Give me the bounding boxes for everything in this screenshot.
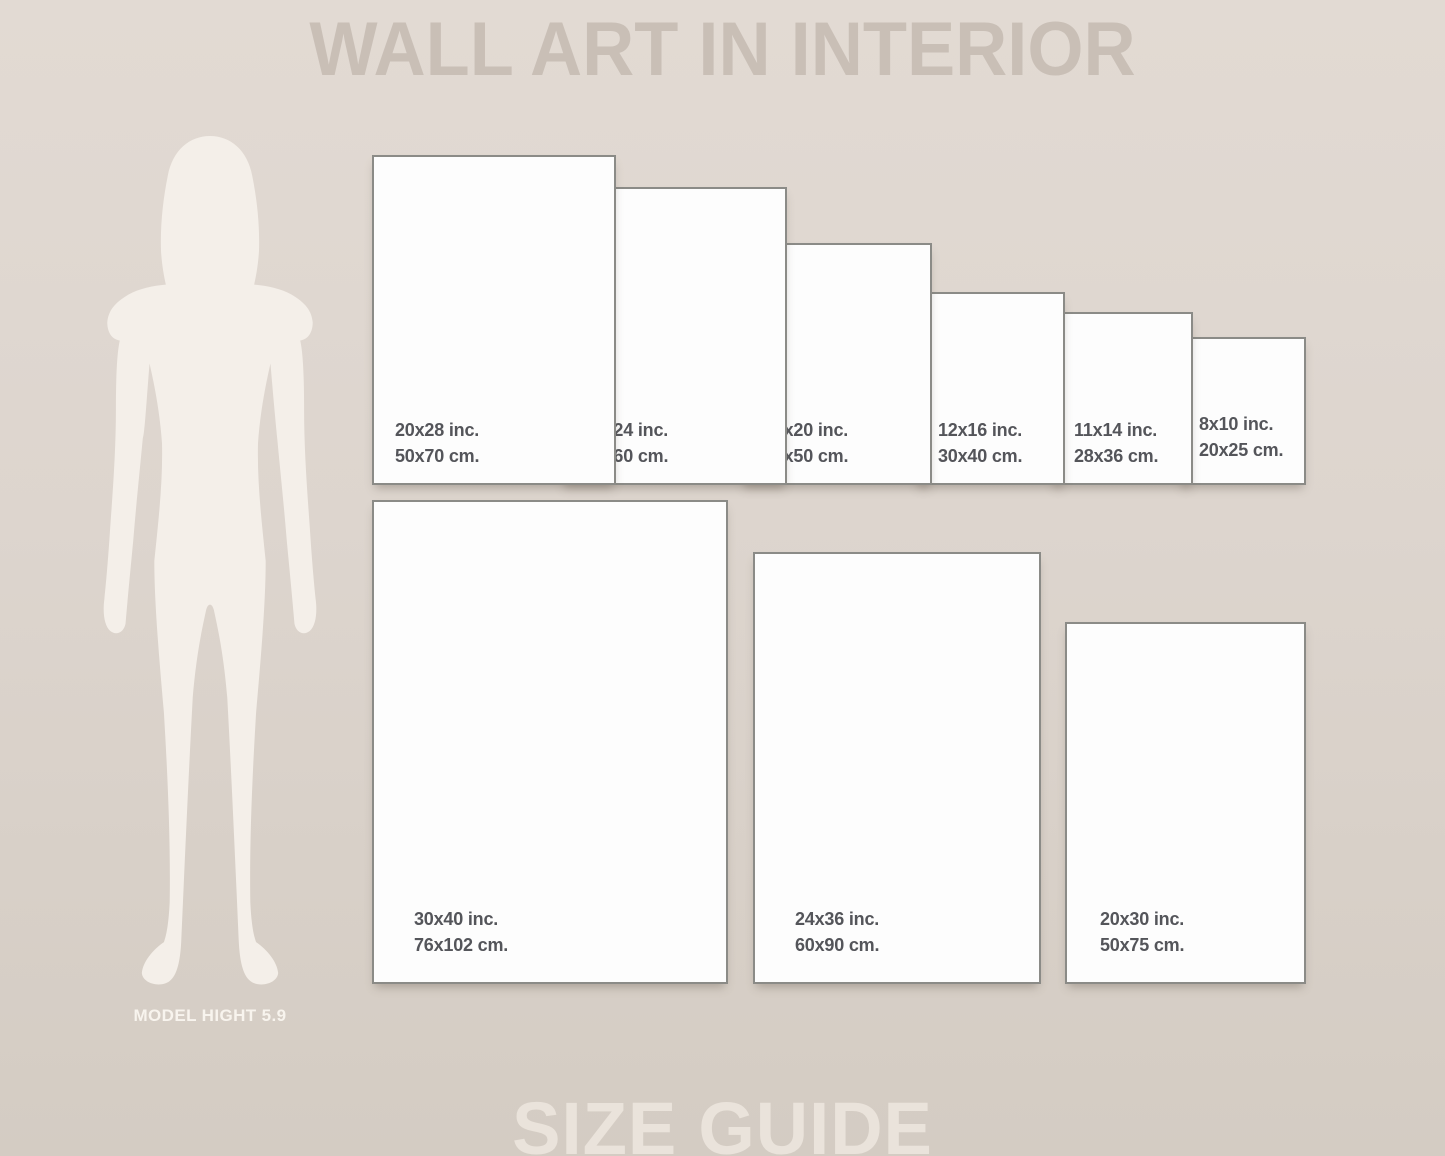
- frame-8x10: 8x10 inc. 20x25 cm.: [1179, 337, 1306, 485]
- frame-12x16: 12x16 inc. 30x40 cm.: [915, 292, 1065, 485]
- page-title: WALL ART IN INTERIOR: [36, 6, 1409, 93]
- frame-24x36: 24x36 inc. 60x90 cm.: [753, 552, 1041, 984]
- frame-20x28: 20x28 inc. 50x70 cm.: [372, 155, 616, 485]
- size-cm: 28x36 cm.: [1074, 443, 1158, 469]
- frame-size-label: 20x28 inc. 50x70 cm.: [395, 417, 479, 469]
- size-cm: 30x40 cm.: [938, 443, 1022, 469]
- frame-30x40: 30x40 inc. 76x102 cm.: [372, 500, 728, 984]
- frame-20x30: 20x30 inc. 50x75 cm.: [1065, 622, 1306, 984]
- woman-silhouette-icon: [90, 134, 330, 992]
- size-inches: 24x36 inc.: [795, 906, 879, 932]
- model-silhouette: [90, 134, 330, 992]
- frame-size-label: 24x36 inc. 60x90 cm.: [795, 906, 879, 958]
- frame-size-label: 11x14 inc. 28x36 cm.: [1074, 417, 1158, 469]
- size-inches: 20x30 inc.: [1100, 906, 1184, 932]
- size-cm: 20x25 cm.: [1199, 437, 1283, 463]
- size-inches: 8x10 inc.: [1199, 411, 1283, 437]
- size-cm: 76x102 cm.: [414, 932, 508, 958]
- size-guide-poster: WALL ART IN INTERIOR MODEL HIGHT 5.9 20x…: [0, 0, 1445, 1156]
- frame-size-label: 20x30 inc. 50x75 cm.: [1100, 906, 1184, 958]
- frame-size-label: 8x10 inc. 20x25 cm.: [1199, 411, 1283, 463]
- size-inches: 12x16 inc.: [938, 417, 1022, 443]
- model-height-label: MODEL HIGHT 5.9: [90, 1006, 330, 1026]
- size-guide-title: SIZE GUIDE: [14, 1086, 1430, 1156]
- size-cm: 50x70 cm.: [395, 443, 479, 469]
- size-inches: 30x40 inc.: [414, 906, 508, 932]
- frame-size-label: 30x40 inc. 76x102 cm.: [414, 906, 508, 958]
- frame-size-label: 12x16 inc. 30x40 cm.: [938, 417, 1022, 469]
- size-inches: 20x28 inc.: [395, 417, 479, 443]
- frame-11x14: 11x14 inc. 28x36 cm.: [1051, 312, 1193, 485]
- size-inches: 11x14 inc.: [1074, 417, 1158, 443]
- size-cm: 60x90 cm.: [795, 932, 879, 958]
- size-cm: 50x75 cm.: [1100, 932, 1184, 958]
